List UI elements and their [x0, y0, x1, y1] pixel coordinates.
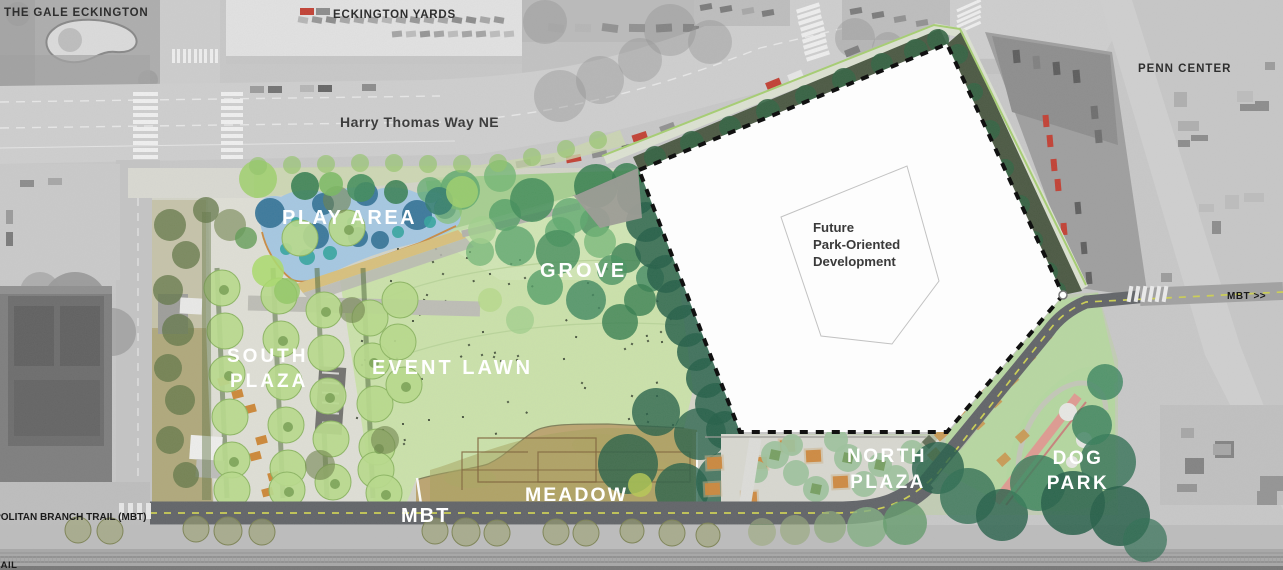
svg-text:Development: Development: [813, 254, 896, 269]
svg-text:GROVE: GROVE: [540, 260, 627, 282]
svg-text:NORTH: NORTH: [847, 446, 927, 467]
svg-text:ECKINGTON YARDS: ECKINGTON YARDS: [333, 9, 456, 21]
svg-text:PLAZA: PLAZA: [230, 371, 308, 392]
svg-text:MEADOW: MEADOW: [525, 484, 628, 506]
svg-text:Future: Future: [813, 220, 854, 235]
svg-text:MBT >>: MBT >>: [1227, 291, 1266, 302]
svg-text:SOUTH: SOUTH: [227, 346, 309, 367]
svg-text:Park-Oriented: Park-Oriented: [813, 237, 900, 252]
svg-text:PLAY AREA: PLAY AREA: [282, 207, 417, 229]
svg-text:Harry Thomas Way NE: Harry Thomas Way NE: [340, 114, 499, 130]
svg-text:PLAZA: PLAZA: [850, 472, 926, 493]
svg-text:PARK: PARK: [1047, 473, 1109, 494]
svg-text:THE GALE ECKINGTON: THE GALE ECKINGTON: [4, 7, 149, 19]
svg-text:PENN CENTER: PENN CENTER: [1138, 63, 1231, 75]
svg-text:TRAIL: TRAIL: [0, 560, 17, 570]
svg-text:DOG: DOG: [1053, 448, 1104, 469]
svg-text:MBT: MBT: [401, 505, 450, 527]
svg-text:EVENT LAWN: EVENT LAWN: [372, 357, 533, 379]
svg-text:METROPOLITAN BRANCH TRAIL (MBT: METROPOLITAN BRANCH TRAIL (MBT): [0, 512, 147, 523]
